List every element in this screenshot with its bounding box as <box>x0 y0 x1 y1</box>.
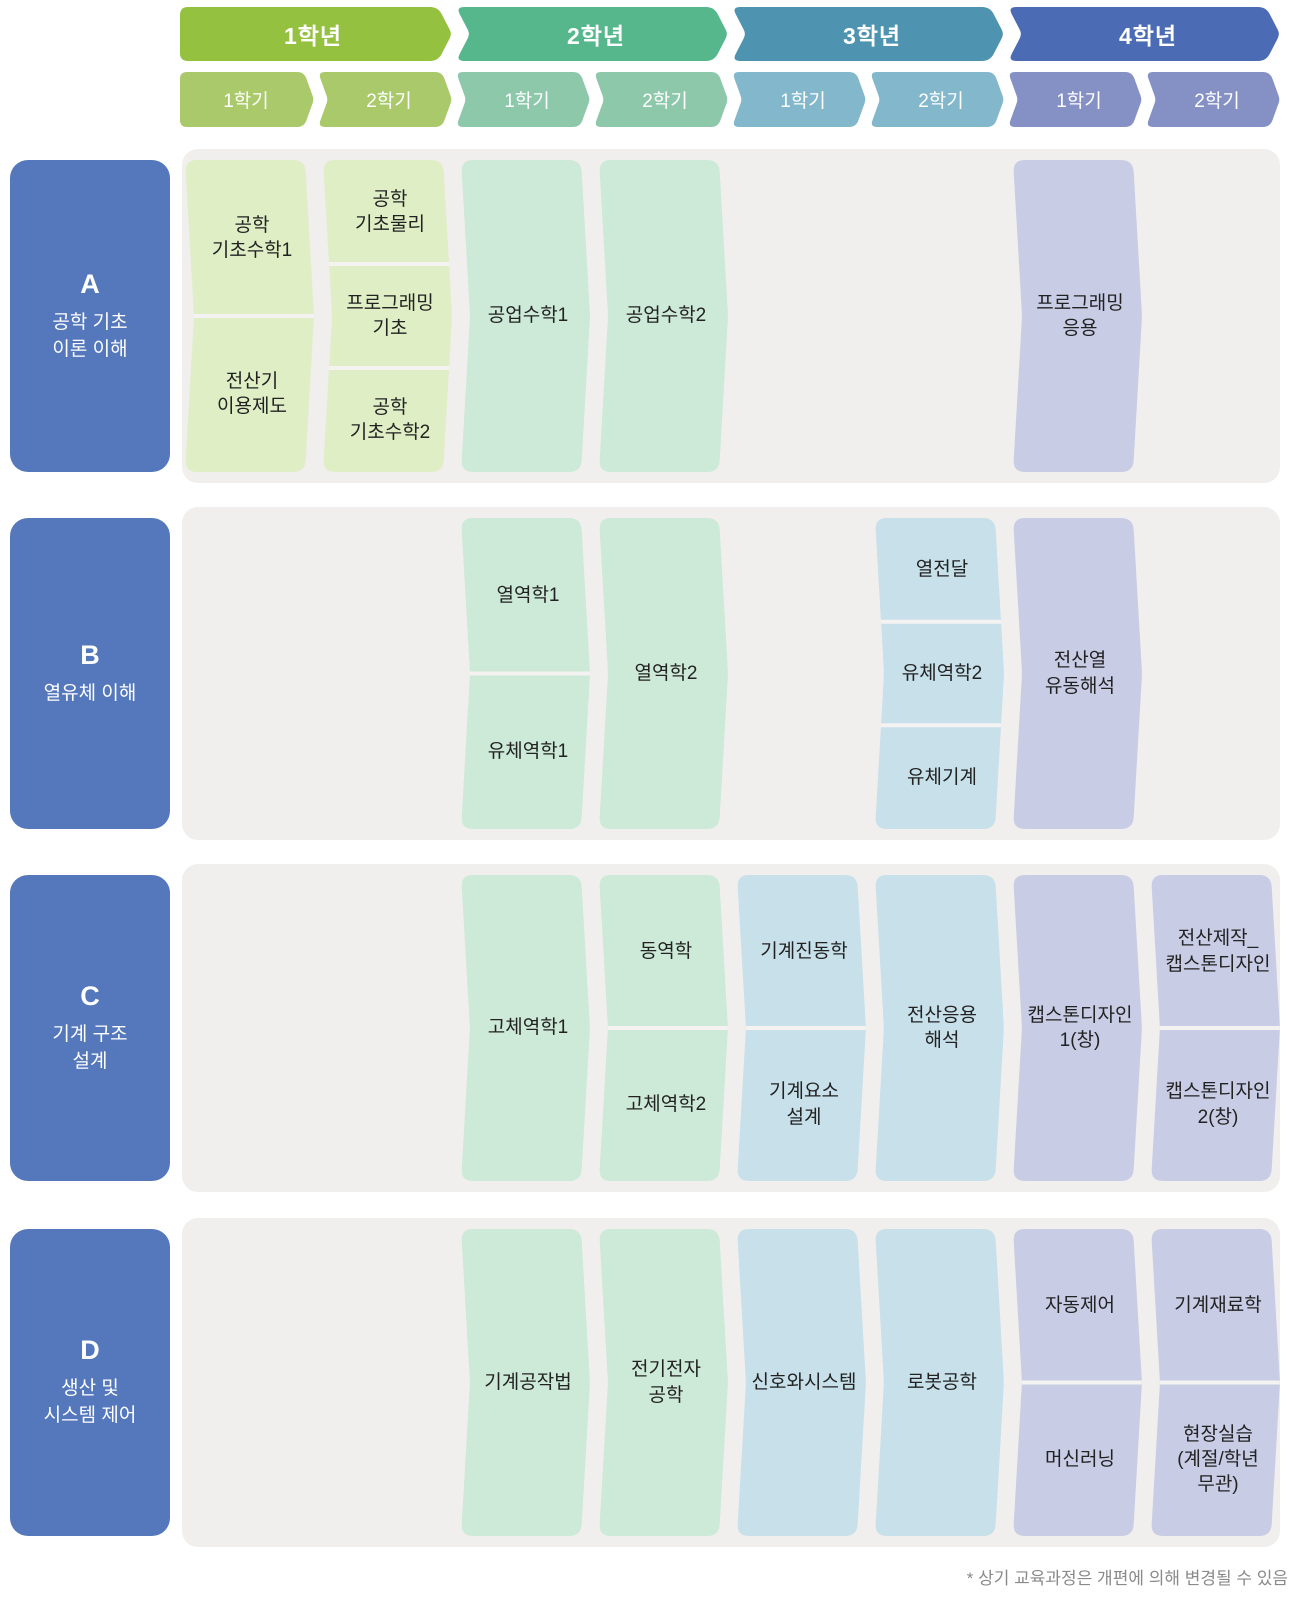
course-label: 유체기계 <box>907 765 977 790</box>
category-title: 열유체 이해 <box>44 681 137 708</box>
year-label: 3학년 <box>746 7 998 61</box>
course-label: 기계재료학 <box>1174 1293 1261 1318</box>
course-label: 전산기 이용제도 <box>217 369 287 419</box>
category-box-c: C기계 구조 설계 <box>10 875 170 1181</box>
course-column-y3s1: 기계진동학기계요소 설계 <box>737 875 866 1181</box>
course-cell: 신호와시스템 <box>737 1229 866 1536</box>
course-cell: 공학 기초수학2 <box>323 368 452 472</box>
course-column-y4s1: 캡스톤디자인 1(창) <box>1013 875 1142 1181</box>
course-cell: 캡스톤디자인 2(창) <box>1151 1028 1280 1181</box>
course-label: 공업수학2 <box>626 303 707 328</box>
course-label: 머신러닝 <box>1045 1447 1115 1472</box>
course-cell: 고체역학2 <box>599 1028 728 1181</box>
semester-arrow-2-1: 1학기 <box>456 72 590 127</box>
course-column-y3s1: 신호와시스템 <box>737 1229 866 1536</box>
course-cell: 캡스톤디자인 1(창) <box>1013 875 1142 1181</box>
course-cell: 동역학 <box>599 875 728 1028</box>
course-label: 자동제어 <box>1045 1293 1115 1318</box>
category-title: 기계 구조 설계 <box>52 1022 127 1075</box>
semester-label: 2학기 <box>604 72 726 127</box>
semester-label: 1학기 <box>466 72 588 127</box>
year-arrow-1: 1학년 <box>180 7 452 61</box>
category-letter: A <box>80 269 100 300</box>
course-column-y4s1: 전산열 유동해석 <box>1013 518 1142 829</box>
course-label: 로봇공학 <box>907 1370 977 1395</box>
category-box-b: B열유체 이해 <box>10 518 170 829</box>
course-label: 유체역학1 <box>488 739 569 764</box>
year-label: 1학년 <box>180 7 446 61</box>
course-cell: 기계요소 설계 <box>737 1028 866 1181</box>
semester-arrow-1-1: 1학기 <box>180 72 314 127</box>
course-column-y2s2: 열역학2 <box>599 518 728 829</box>
course-cell: 전산제작_ 캡스톤디자인 <box>1151 875 1280 1028</box>
year-arrow-3: 3학년 <box>732 7 1004 61</box>
course-label: 프로그래밍 응용 <box>1036 291 1123 341</box>
course-cell: 공학 기초물리 <box>323 160 452 264</box>
course-cell: 머신러닝 <box>1013 1383 1142 1537</box>
course-label: 동역학 <box>640 939 692 964</box>
semester-arrow-4-1: 1학기 <box>1008 72 1142 127</box>
semester-arrow-4-2: 2학기 <box>1146 72 1280 127</box>
course-cell: 기계진동학 <box>737 875 866 1028</box>
category-letter: D <box>80 1335 100 1366</box>
course-cell: 자동제어 <box>1013 1229 1142 1383</box>
semester-arrow-1-2: 2학기 <box>318 72 452 127</box>
course-cell: 프로그래밍 응용 <box>1013 160 1142 472</box>
course-column-y2s2: 공업수학2 <box>599 160 728 472</box>
course-label: 공학 기초수학1 <box>212 213 293 263</box>
category-box-d: D생산 및 시스템 제어 <box>10 1229 170 1536</box>
course-cell: 전기전자 공학 <box>599 1229 728 1536</box>
course-column-y2s2: 동역학고체역학2 <box>599 875 728 1181</box>
course-label: 공업수학1 <box>488 303 569 328</box>
year-label: 4학년 <box>1022 7 1274 61</box>
course-cell: 유체기계 <box>875 725 1004 829</box>
year-label: 2학년 <box>470 7 722 61</box>
course-column-y3s2: 로봇공학 <box>875 1229 1004 1536</box>
year-arrow-4: 4학년 <box>1008 7 1280 61</box>
course-cell: 열전달 <box>875 518 1004 622</box>
course-label: 신호와시스템 <box>752 1370 857 1395</box>
semester-arrow-2-2: 2학기 <box>594 72 728 127</box>
semester-label: 1학기 <box>180 72 312 127</box>
course-cell: 전산기 이용제도 <box>185 316 314 472</box>
course-column-y4s1: 프로그래밍 응용 <box>1013 160 1142 472</box>
course-column-y2s1: 공업수학1 <box>461 160 590 472</box>
semester-arrow-3-2: 2학기 <box>870 72 1004 127</box>
course-label: 공학 기초물리 <box>355 187 425 237</box>
course-cell: 유체역학2 <box>875 622 1004 726</box>
category-letter: B <box>80 640 100 671</box>
category-letter: C <box>80 981 100 1012</box>
course-cell: 열역학2 <box>599 518 728 829</box>
course-column-y4s1: 자동제어머신러닝 <box>1013 1229 1142 1536</box>
course-cell: 전산응용 해석 <box>875 875 1004 1181</box>
course-label: 고체역학1 <box>488 1015 569 1040</box>
course-column-y4s2: 전산제작_ 캡스톤디자인캡스톤디자인 2(창) <box>1151 875 1280 1181</box>
course-label: 열역학2 <box>634 661 697 686</box>
course-column-y3s2: 열전달유체역학2유체기계 <box>875 518 1004 829</box>
semester-label: 2학기 <box>880 72 1002 127</box>
course-label: 열전달 <box>916 557 968 582</box>
course-label: 전산열 유동해석 <box>1045 648 1115 698</box>
course-column-y3s2: 전산응용 해석 <box>875 875 1004 1181</box>
course-cell: 공업수학1 <box>461 160 590 472</box>
course-label: 열역학1 <box>496 583 559 608</box>
course-label: 유체역학2 <box>902 661 983 686</box>
curriculum-roadmap: 1학년1학기2학기2학년1학기2학기3학년1학기2학기4학년1학기2학기 A공학… <box>0 0 1300 1600</box>
course-cell: 공학 기초수학1 <box>185 160 314 316</box>
semester-label: 1학기 <box>742 72 864 127</box>
course-label: 기계진동학 <box>760 939 847 964</box>
semester-arrow-3-1: 1학기 <box>732 72 866 127</box>
course-column-y4s2: 기계재료학현장실습 (계절/학년 무관) <box>1151 1229 1280 1536</box>
course-label: 전기전자 공학 <box>631 1357 701 1407</box>
category-box-a: A공학 기초 이론 이해 <box>10 160 170 472</box>
course-cell: 열역학1 <box>461 518 590 674</box>
course-label: 공학 기초수학2 <box>350 395 431 445</box>
course-column-y2s1: 열역학1유체역학1 <box>461 518 590 829</box>
semester-label: 2학기 <box>328 72 450 127</box>
course-cell: 전산열 유동해석 <box>1013 518 1142 829</box>
course-label: 기계공작법 <box>484 1370 571 1395</box>
footnote: * 상기 교육과정은 개편에 의해 변경될 수 있음 <box>967 1564 1288 1589</box>
course-label: 캡스톤디자인 1(창) <box>1028 1003 1133 1053</box>
course-column-y1s2: 공학 기초물리프로그래밍 기초공학 기초수학2 <box>323 160 452 472</box>
course-column-y2s2: 전기전자 공학 <box>599 1229 728 1536</box>
semester-label: 2학기 <box>1156 72 1278 127</box>
course-cell: 공업수학2 <box>599 160 728 472</box>
year-arrow-2: 2학년 <box>456 7 728 61</box>
course-label: 전산응용 해석 <box>907 1003 977 1053</box>
course-cell: 고체역학1 <box>461 875 590 1181</box>
course-cell: 기계공작법 <box>461 1229 590 1536</box>
course-column-y1s1: 공학 기초수학1전산기 이용제도 <box>185 160 314 472</box>
course-label: 프로그래밍 기초 <box>346 291 433 341</box>
course-label: 기계요소 설계 <box>769 1079 839 1129</box>
course-label: 캡스톤디자인 2(창) <box>1166 1079 1271 1129</box>
course-column-y2s1: 기계공작법 <box>461 1229 590 1536</box>
category-title: 공학 기초 이론 이해 <box>52 310 127 363</box>
course-cell: 프로그래밍 기초 <box>323 264 452 368</box>
course-cell: 기계재료학 <box>1151 1229 1280 1383</box>
course-label: 현장실습 (계절/학년 무관) <box>1177 1422 1259 1497</box>
semester-label: 1학기 <box>1018 72 1140 127</box>
category-title: 생산 및 시스템 제어 <box>44 1376 137 1429</box>
course-cell: 유체역학1 <box>461 674 590 830</box>
course-label: 고체역학2 <box>626 1092 707 1117</box>
course-cell: 로봇공학 <box>875 1229 1004 1536</box>
course-cell: 현장실습 (계절/학년 무관) <box>1151 1383 1280 1537</box>
course-column-y2s1: 고체역학1 <box>461 875 590 1181</box>
course-label: 전산제작_ 캡스톤디자인 <box>1166 926 1271 976</box>
